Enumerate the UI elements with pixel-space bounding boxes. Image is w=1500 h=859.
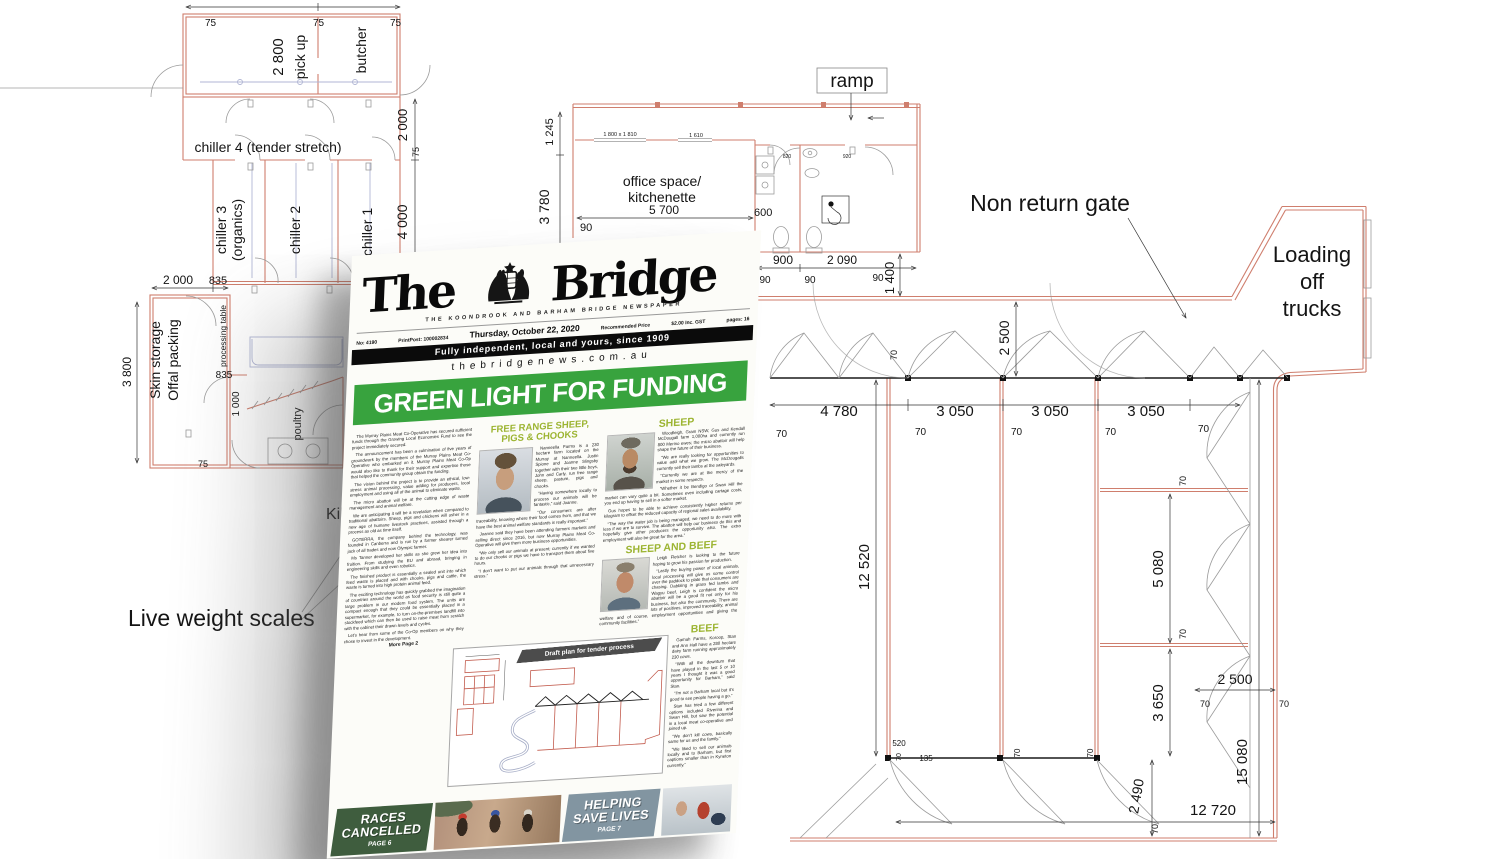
dim-2000-b: 2 000 xyxy=(163,273,193,287)
room-label-chiller1: chiller 1 xyxy=(359,208,375,256)
dim-12720: 12 720 xyxy=(1190,802,1236,819)
label-non-return-gate: Non return gate xyxy=(970,190,1130,216)
room-label-chiller3-line2: (organics) xyxy=(229,199,245,261)
yard-gates xyxy=(770,283,1290,838)
room-label-pickup: pick up xyxy=(292,35,308,80)
dim-70-c: 70 xyxy=(1011,427,1023,438)
dim-920: 920 xyxy=(843,154,852,160)
dim-70-h: 70 xyxy=(1178,629,1188,639)
dim-75-b: 75 xyxy=(313,18,325,29)
photo-blood-donors xyxy=(661,784,732,836)
dim-70-d: 70 xyxy=(1105,427,1117,438)
dim-70-b: 70 xyxy=(915,427,927,438)
dim-4780: 4 780 xyxy=(820,403,858,420)
dim-90-c: 90 xyxy=(804,275,816,286)
promo-helping-line2: SAVE LIVES xyxy=(572,809,650,827)
dim-70-l: 70 xyxy=(896,753,903,761)
dim-3780: 3 780 xyxy=(536,189,552,224)
dim-window-1610: 1 610 xyxy=(689,133,703,139)
dim-70-a: 70 xyxy=(776,429,788,440)
paragraph: Gamah Farms, Koroop, Stan and Ann Hall h… xyxy=(672,634,737,660)
room-label-processing-table: processing table xyxy=(218,305,228,367)
dim-5080: 5 080 xyxy=(1150,550,1167,588)
dim-835-b: 835 xyxy=(216,370,233,381)
dim-70-e: 70 xyxy=(1198,424,1210,435)
room-label-butcher: butcher xyxy=(353,26,369,73)
dim-600: 600 xyxy=(754,207,772,219)
label-live-weight-scales: Live weight scales xyxy=(128,605,315,631)
promo-races-line2: CANCELLED xyxy=(341,823,423,842)
newspaper-front-page: The Bridge THE KOONDROOK AND BARHAM BRID… xyxy=(327,230,761,859)
room-label-office-line1: office space/ xyxy=(623,173,701,189)
yard-walls xyxy=(700,207,1371,842)
dim-835-a: 835 xyxy=(209,275,227,287)
room-label-chiller3-line1: chiller 3 xyxy=(213,206,229,254)
dim-75-e: 75 xyxy=(198,459,208,469)
dim-15080: 15 080 xyxy=(1234,739,1251,785)
dim-900: 900 xyxy=(773,253,793,267)
price-value: $2.00 Inc. GST xyxy=(671,319,705,327)
paragraph: “With all the downturn that have played … xyxy=(670,658,735,689)
dim-3650: 3 650 xyxy=(1150,684,1167,722)
dim-1400: 1 400 xyxy=(882,262,897,295)
dim-75-d: 75 xyxy=(411,147,421,157)
price-label: Recommended Price xyxy=(601,322,651,331)
dim-1000: 1 000 xyxy=(231,391,242,416)
room-label-skin-storage: Skin storage xyxy=(147,321,163,399)
dim-520: 520 xyxy=(892,739,906,748)
article-column-2: FREE RANGE SHEEP, PIGS & CHOOKS Nanneell… xyxy=(471,419,600,648)
dim-1245: 1 245 xyxy=(544,118,556,146)
dim-12520: 12 520 xyxy=(856,544,873,590)
dim-70-j: 70 xyxy=(1279,699,1289,709)
dim-70-i: 70 xyxy=(1200,699,1210,709)
label-loading-line3: trucks xyxy=(1283,296,1342,321)
dim-2490: 2 490 xyxy=(1125,777,1147,814)
screenshot-root: { "plan": { "rooms": { "pickup": "pick u… xyxy=(0,0,1500,845)
print-post: PrintPost: 100002834 xyxy=(398,335,448,344)
room-label-poultry: poultry xyxy=(292,407,304,441)
label-loading-line1: Loading xyxy=(1273,242,1351,267)
dim-135: 135 xyxy=(919,754,933,763)
dim-2800: 2 800 xyxy=(270,38,287,76)
room-label-chiller2: chiller 2 xyxy=(287,206,303,254)
dim-window-1800: 1 800 x 1 810 xyxy=(603,132,636,138)
photo-man-cap xyxy=(605,432,655,491)
pages-count: pages: 16 xyxy=(726,316,749,323)
promo-helping-page: PAGE 7 xyxy=(597,825,621,834)
room-label-chiller4: chiller 4 (tender stretch) xyxy=(194,139,341,155)
dim-2500-b: 2 500 xyxy=(1217,671,1252,687)
dim-75-a: 75 xyxy=(205,18,217,29)
dim-70-k: 70 xyxy=(1150,824,1160,834)
dim-2500-a: 2 500 xyxy=(996,320,1012,355)
photo-man-farmer xyxy=(600,557,650,612)
dim-3800: 3 800 xyxy=(120,357,134,387)
issue-number: No: 4190 xyxy=(356,340,377,347)
masthead-title-the: The xyxy=(361,272,456,318)
masthead-title-bridge: Bridge xyxy=(550,255,717,306)
dim-3050-b: 3 050 xyxy=(1031,403,1069,420)
dim-70-n: 70 xyxy=(1086,748,1095,757)
coat-of-arms-icon xyxy=(480,256,538,310)
dim-3050-a: 3 050 xyxy=(936,403,974,420)
paragraph: The exciting technology has quickly grab… xyxy=(344,586,465,632)
dim-75-c: 75 xyxy=(390,18,402,29)
dim-70-g: 70 xyxy=(1178,476,1188,486)
dim-2090: 2 090 xyxy=(827,253,857,267)
photo-horse-racing xyxy=(434,795,562,850)
paragraph: Stan has tried a few different options i… xyxy=(669,700,734,731)
dim-5700: 5 700 xyxy=(649,203,679,217)
dim-4000: 4 000 xyxy=(394,204,410,239)
photo-woman-farmer xyxy=(477,447,534,515)
beef-section: BEEF Gamah Farms, Koroop, Stan and Ann H… xyxy=(667,622,737,769)
dim-90-b: 90 xyxy=(759,275,771,286)
dim-90-a: 90 xyxy=(580,222,592,234)
promo-helping: HELPING SAVE LIVES PAGE 7 xyxy=(562,789,661,842)
paragraph: “We liked to sell our animals locally an… xyxy=(667,743,732,769)
dim-820: 820 xyxy=(783,154,792,160)
room-label-offal-packing: Offal packing xyxy=(165,319,181,400)
dim-3050-c: 3 050 xyxy=(1127,403,1165,420)
promo-races: RACES CANCELLED PAGE 6 xyxy=(330,803,433,857)
dim-70-f: 70 xyxy=(889,350,899,360)
dim-70-m: 70 xyxy=(1013,748,1022,757)
promo-races-page: PAGE 6 xyxy=(367,840,391,849)
label-loading-line2: off xyxy=(1300,269,1325,294)
dim-2000-a: 2 000 xyxy=(395,109,410,142)
draft-plan-inset: Draft plan for tender process xyxy=(447,635,668,787)
